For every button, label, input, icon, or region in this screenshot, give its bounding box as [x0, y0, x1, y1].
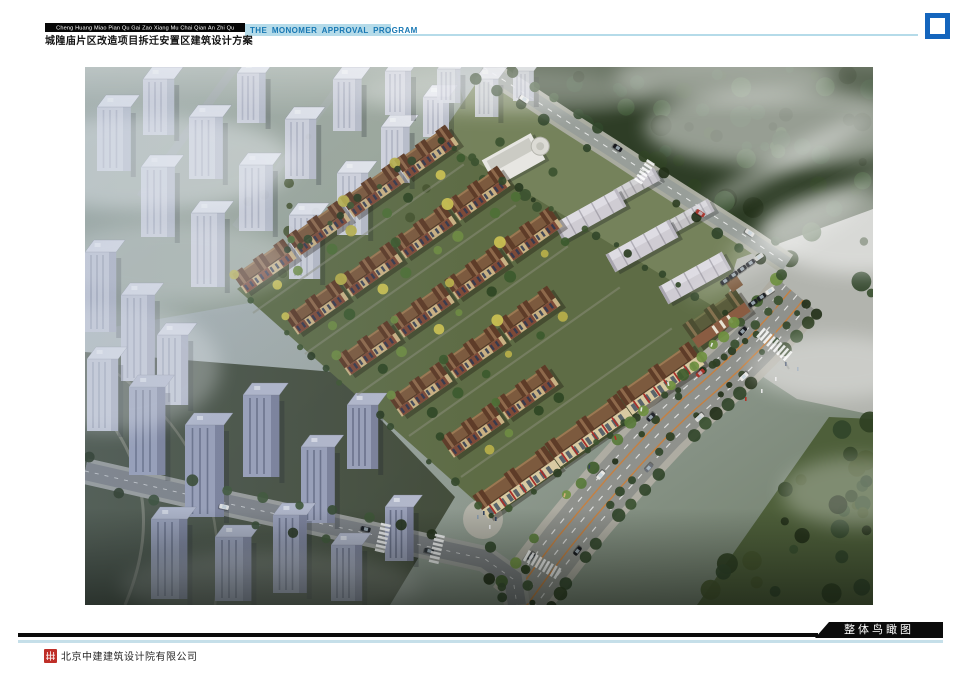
footer-rule	[18, 633, 818, 637]
pinyin-text: Cheng Huang Miao Pian Qu Gai Zao Xiang M…	[56, 24, 234, 30]
aerial-rendering	[85, 67, 873, 605]
corner-bracket	[936, 25, 950, 39]
aerial-render-image	[85, 67, 873, 605]
company-logo-icon	[44, 649, 57, 663]
header-rule	[389, 34, 918, 36]
company-credit: 北京中建建筑设计院有限公司	[44, 648, 198, 663]
company-name: 北京中建建筑设计院有限公司	[61, 648, 198, 663]
presentation-page: Cheng Huang Miao Pian Qu Gai Zao Xiang M…	[0, 0, 960, 679]
program-banner: THE MONOMER APPROVAL PROGRAM	[245, 24, 391, 36]
footer-rule-light	[18, 640, 943, 643]
pinyin-strip: Cheng Huang Miao Pian Qu Gai Zao Xiang M…	[45, 23, 245, 32]
layer-fx	[85, 67, 873, 605]
page-title: 城隍庙片区改造项目拆迁安置区建筑设计方案	[45, 32, 253, 47]
sheet-caption: 整体鸟瞰图	[815, 622, 943, 638]
fullscreen-icon[interactable]	[925, 13, 950, 39]
